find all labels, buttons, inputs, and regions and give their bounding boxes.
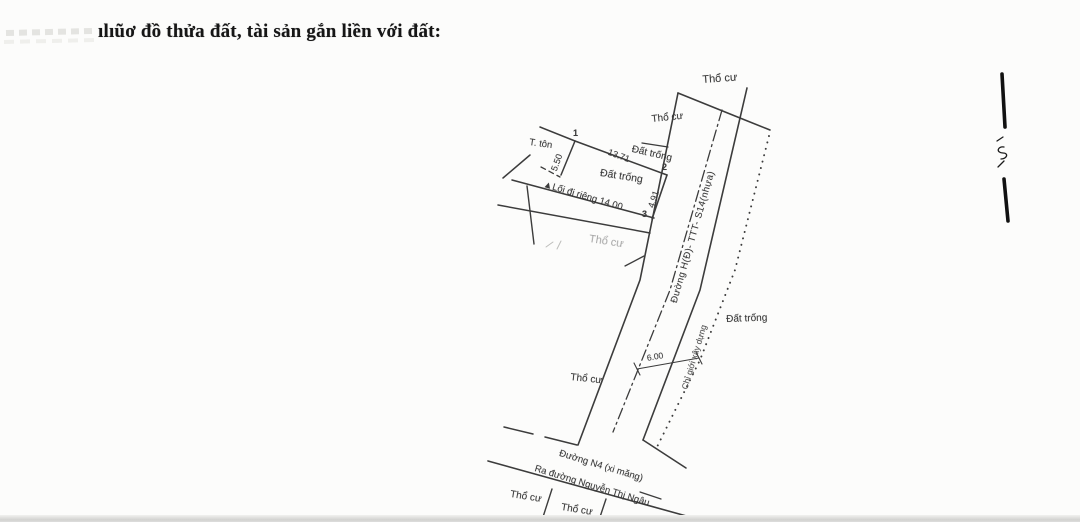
faint-scribble: [546, 241, 561, 249]
page-edge-mark: [1002, 74, 1005, 127]
vertex-label-3: 3: [642, 209, 647, 219]
vertex-label-2: 2: [662, 162, 667, 172]
path-lower-line: [498, 205, 650, 233]
left-parcel-divider: [527, 186, 534, 244]
land-label-dat-trong-right: Đất trống: [726, 313, 767, 325]
road-bend-line: [643, 440, 686, 468]
page-edge-mark: [1004, 179, 1008, 221]
vertex-label-1: 1: [573, 128, 578, 138]
bottom-parcel-divider: [543, 489, 552, 517]
land-label-tho-cu-top: Thổ cư: [702, 72, 738, 86]
n4-upper-edge: [504, 427, 577, 445]
road-right-edge: [643, 88, 747, 440]
page-edge-scribble: [997, 137, 1007, 167]
mid-parcel-divider: [625, 256, 644, 266]
parcel-diagram: [0, 0, 1080, 522]
neighbor-boundary: [503, 155, 530, 178]
scan-edge-strip: [0, 515, 1080, 522]
top-boundary-line: [678, 93, 770, 130]
scanned-land-title-page: ılıũơ đồ thửa đất, tài sản gắn liền với …: [0, 0, 1080, 522]
